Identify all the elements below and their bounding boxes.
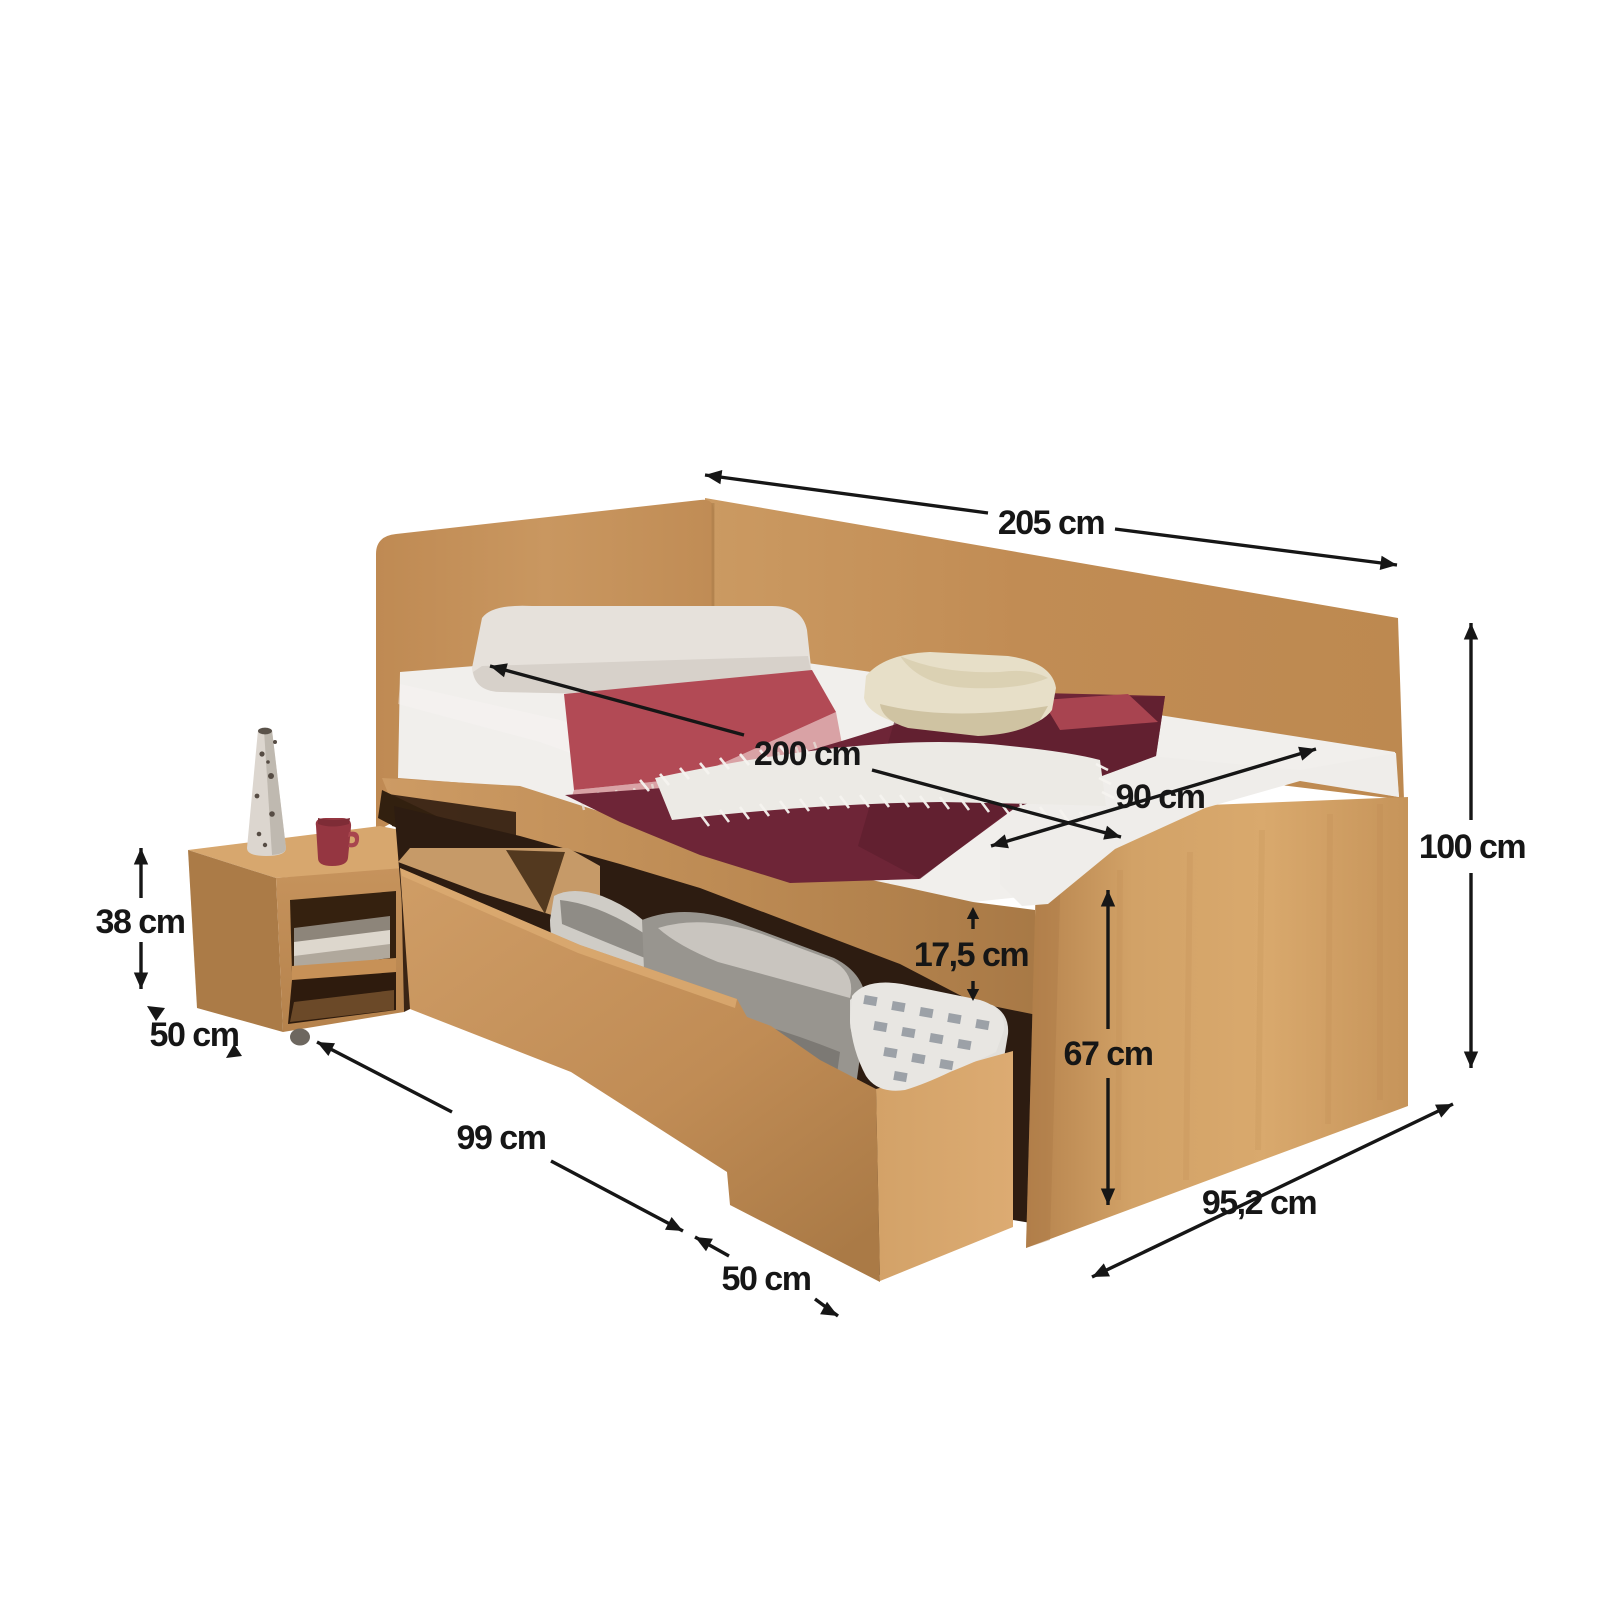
svg-text:200 cm: 200 cm: [754, 735, 861, 773]
svg-text:100 cm: 100 cm: [1419, 828, 1526, 866]
svg-text:205 cm: 205 cm: [998, 504, 1105, 542]
svg-text:95,2 cm: 95,2 cm: [1202, 1184, 1317, 1222]
svg-text:90 cm: 90 cm: [1116, 778, 1205, 816]
svg-text:38 cm: 38 cm: [96, 903, 185, 941]
svg-text:17,5 cm: 17,5 cm: [914, 936, 1029, 974]
svg-text:50 cm: 50 cm: [150, 1016, 239, 1054]
svg-text:99 cm: 99 cm: [457, 1119, 546, 1157]
svg-text:50 cm: 50 cm: [722, 1260, 811, 1298]
svg-text:67 cm: 67 cm: [1064, 1035, 1153, 1073]
